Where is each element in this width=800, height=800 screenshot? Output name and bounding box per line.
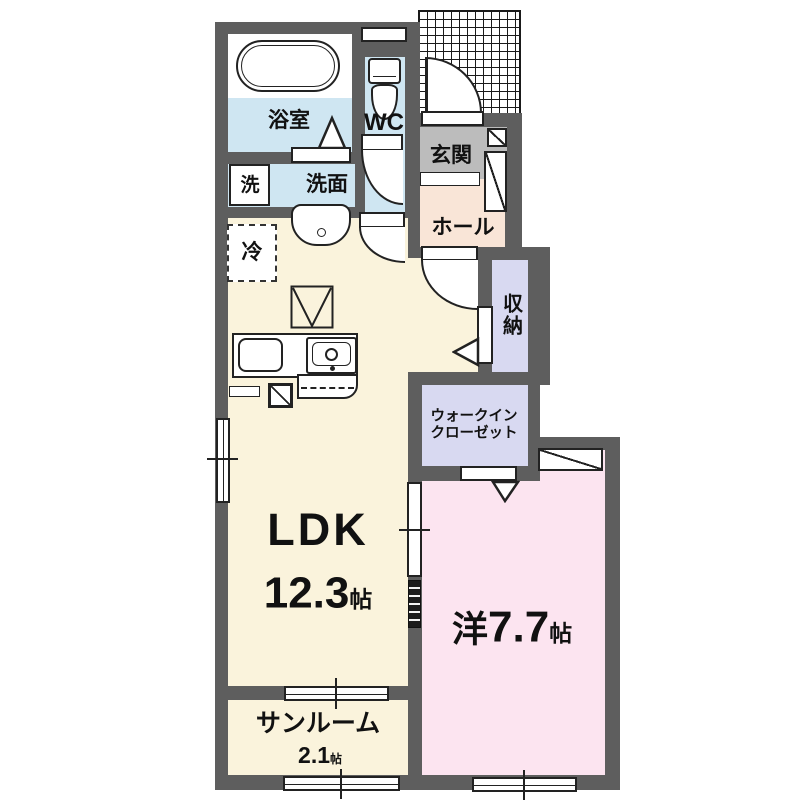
wc-window xyxy=(361,27,407,42)
bath-label: 浴室 xyxy=(268,109,310,133)
kitchen-side-panel xyxy=(229,386,260,397)
sunroom-bottom-window-tick xyxy=(340,769,342,799)
kitchen-column xyxy=(268,383,293,408)
sliding-door-panel xyxy=(408,580,421,628)
kitchen-sink-icon xyxy=(238,338,283,372)
wic-door-arrow-icon xyxy=(491,480,520,503)
shoe-box-icon xyxy=(487,128,507,147)
stove-icon xyxy=(306,337,357,374)
entrance-threshold xyxy=(421,111,484,126)
storage-label: 収納 xyxy=(499,293,522,337)
bath-door-threshold xyxy=(291,147,351,163)
western-label: 洋7.7帖 xyxy=(452,603,572,654)
bath-folding-door-icon xyxy=(316,115,348,151)
ldk-sunroom-window-tick xyxy=(335,678,337,709)
ldk-left-window xyxy=(216,418,230,503)
western-bottom-window-tick xyxy=(523,770,525,800)
counter-lower xyxy=(297,374,358,399)
wic-door xyxy=(460,466,517,481)
wic-label: ウォークイン クローゼット xyxy=(431,408,518,441)
sunroom-size-label: 2.1帖 xyxy=(298,742,342,768)
fridge-label: 冷 xyxy=(242,241,263,265)
range-hood-icon xyxy=(290,285,334,329)
floor-plan: 浴室 WC 玄関 ホール 洗 洗面 冷 収納 ウォークイン クローゼット LDK… xyxy=(0,0,800,800)
storage-door-arrow-icon xyxy=(452,336,480,368)
toilet-tank-icon xyxy=(368,58,401,84)
genkan-step xyxy=(420,172,480,186)
washroom-label: 洗面 xyxy=(306,173,348,197)
sliding-door-tick xyxy=(399,529,430,531)
ldk-label: LDK xyxy=(267,504,368,556)
bathtub-icon xyxy=(236,40,340,92)
washroom-door-leaf xyxy=(359,212,405,228)
hall-label: ホール xyxy=(432,216,495,240)
hall-door-leaf xyxy=(421,246,478,261)
sunroom-label: サンルーム xyxy=(256,710,380,739)
shoe-cabinet-icon xyxy=(484,151,507,212)
closet-icon xyxy=(538,448,603,471)
genkan-label: 玄関 xyxy=(430,144,472,168)
laundry-label: 洗 xyxy=(240,175,259,197)
ldk-left-window-tick xyxy=(207,458,238,460)
ldk-size-label: 12.3帖 xyxy=(264,569,373,620)
wc-label: WC xyxy=(364,109,404,137)
